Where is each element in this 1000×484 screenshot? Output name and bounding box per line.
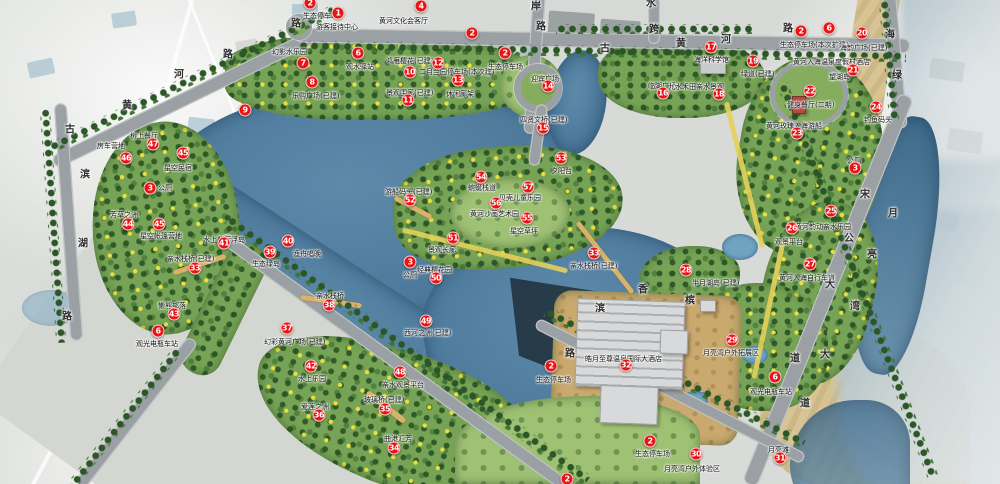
- road-label-char: 道: [790, 350, 800, 365]
- marker-label: 渔舟唱晚: [293, 251, 321, 258]
- map-marker-21[interactable]: 21: [847, 64, 860, 77]
- marker-label: 生态停车场: [635, 451, 670, 458]
- marker-label: 海洋科学馆: [694, 57, 729, 64]
- map-marker-9[interactable]: 9: [239, 104, 252, 117]
- marker-label: 鸿雁樱花(已建): [386, 58, 433, 65]
- map-marker-41[interactable]: 41: [218, 237, 231, 250]
- map-marker-27[interactable]: 27: [804, 258, 817, 271]
- marker-label: 亲水观景平台: [382, 382, 424, 389]
- map-marker-57[interactable]: 57: [522, 181, 535, 194]
- road-label-char: 月: [888, 205, 898, 220]
- map-marker-38[interactable]: 38: [323, 299, 336, 312]
- map-marker-6[interactable]: 6: [823, 22, 836, 35]
- road-label-char: 古: [65, 121, 75, 136]
- marker-label: 生态停车场: [488, 64, 523, 71]
- road-label-char: 大: [825, 276, 835, 291]
- road-label-char: 水: [646, 0, 656, 10]
- map-marker-42[interactable]: 42: [305, 360, 318, 373]
- map-marker-4[interactable]: 4: [415, 0, 428, 13]
- marker-label: 幻彩黄河广场(已建): [264, 339, 325, 346]
- map-marker-10[interactable]: 10: [404, 66, 417, 79]
- park-masterplan-map: 2生态停车场1游客接待中心4黄河文化会客厅26观水驿站7幻影水乐园12鸿雁樱花(…: [0, 0, 1000, 484]
- map-marker-31[interactable]: 31: [774, 452, 787, 465]
- map-marker-3[interactable]: 3: [144, 182, 157, 195]
- map-marker-54[interactable]: 54: [475, 171, 488, 184]
- road-label-char: 路: [536, 18, 546, 33]
- map-marker-20[interactable]: 20: [856, 27, 869, 40]
- marker-label: 贝壳儿童乐园: [499, 195, 541, 202]
- map-marker-6[interactable]: 6: [152, 325, 165, 338]
- map-overlay: 2生态停车场1游客接待中心4黄河文化会客厅26观水驿站7幻影水乐园12鸿雁樱花(…: [0, 0, 1000, 484]
- map-marker-51[interactable]: 51: [447, 232, 460, 245]
- map-marker-36[interactable]: 36: [313, 409, 326, 422]
- road-label-char: 绿: [892, 67, 902, 82]
- map-marker-19[interactable]: 19: [747, 55, 760, 68]
- marker-label: 房车营地: [97, 143, 125, 150]
- road-label-char: 滨: [595, 300, 605, 315]
- road-label-char: 滨: [80, 166, 90, 181]
- marker-label: 幻影水乐园: [272, 49, 307, 56]
- map-marker-7[interactable]: 7: [297, 57, 310, 70]
- road-label-char: 湖: [78, 235, 88, 250]
- map-marker-34[interactable]: 34: [388, 442, 401, 455]
- map-marker-2[interactable]: 2: [466, 27, 479, 40]
- map-marker-29[interactable]: 29: [726, 334, 739, 347]
- marker-label: 健身餐厅(二期): [787, 102, 834, 109]
- map-marker-16[interactable]: 16: [657, 87, 670, 100]
- marker-label: 蜿蜒栈道: [468, 185, 496, 192]
- marker-label: 夕阳台: [551, 168, 572, 175]
- marker-label: 乐购广场(已建): [292, 93, 339, 100]
- map-marker-13[interactable]: 13: [452, 74, 465, 87]
- marker-label: 黄河文化会客厅: [379, 18, 428, 25]
- map-marker-6[interactable]: 6: [352, 47, 365, 60]
- road-label-char: 河: [174, 66, 184, 81]
- road-label-char: 公: [844, 230, 854, 245]
- road-label-char: 槟: [685, 292, 695, 307]
- map-marker-55[interactable]: 55: [521, 212, 534, 225]
- map-marker-53[interactable]: 53: [555, 152, 568, 165]
- marker-label: 游客接待中心: [316, 24, 358, 31]
- map-marker-6[interactable]: 6: [769, 371, 782, 384]
- marker-label: 水上乐园: [298, 376, 326, 383]
- map-marker-35[interactable]: 35: [379, 403, 392, 416]
- map-marker-15[interactable]: 15: [537, 122, 550, 135]
- road-label-char: 跨: [649, 21, 659, 36]
- road-label-char: 湾: [850, 298, 860, 313]
- map-marker-23[interactable]: 23: [791, 127, 804, 140]
- map-marker-2[interactable]: 2: [499, 47, 512, 60]
- marker-label: 黄河韵动亲水乐园: [795, 224, 851, 231]
- marker-label: 公厕: [158, 185, 172, 192]
- road-label-char: 宋: [860, 186, 870, 201]
- marker-label: 公厕: [403, 272, 417, 279]
- road-label-char: 香: [638, 281, 648, 296]
- map-marker-14[interactable]: 14: [542, 80, 555, 93]
- road-label-char: 亮: [867, 246, 877, 261]
- map-marker-32[interactable]: 32: [620, 359, 633, 372]
- map-marker-11[interactable]: 11: [402, 94, 415, 107]
- road-label-char: 海: [885, 26, 895, 41]
- marker-label: 绿道(已建): [741, 71, 774, 78]
- map-marker-12[interactable]: 12: [432, 57, 445, 70]
- road-label-char: 路: [62, 308, 72, 323]
- road-label-char: 路: [223, 46, 233, 61]
- road-label-char: 黄: [676, 35, 686, 50]
- marker-label: 星空草坪: [510, 228, 538, 235]
- map-marker-2[interactable]: 2: [304, 0, 317, 10]
- map-marker-2[interactable]: 2: [644, 435, 657, 448]
- road-label-char: 道: [800, 395, 810, 410]
- marker-label: 半月湖岛(已建): [692, 280, 739, 287]
- road-label-char: 黄: [122, 97, 132, 112]
- map-marker-2[interactable]: 2: [545, 360, 558, 373]
- map-marker-2[interactable]: 2: [561, 473, 574, 484]
- marker-label: 观水驿站: [346, 64, 374, 71]
- road-label-char: 路: [291, 15, 301, 30]
- marker-label: 观光电瓶车站: [136, 341, 178, 348]
- map-marker-30[interactable]: 30: [690, 448, 703, 461]
- marker-label: 月亮湾户外体验区: [664, 466, 720, 473]
- road-label-char: 路: [783, 20, 793, 35]
- road-label-char: 路: [565, 345, 575, 360]
- marker-label: 生态停车场(本次扩建): [780, 42, 848, 49]
- marker-label: 海韵广场(已建): [840, 45, 887, 52]
- marker-label: 星空民宿: [164, 165, 192, 172]
- map-marker-26[interactable]: 26: [786, 222, 799, 235]
- map-marker-33[interactable]: 33: [588, 247, 601, 260]
- map-marker-52[interactable]: 52: [404, 194, 417, 207]
- road-label-char: 河: [721, 31, 731, 46]
- marker-label: 休闲廊架: [446, 91, 474, 98]
- marker-label: 望湖岛: [829, 74, 850, 81]
- marker-label: 生态绿岛: [252, 261, 280, 268]
- map-marker-43[interactable]: 43: [168, 308, 181, 321]
- map-marker-18[interactable]: 18: [713, 88, 726, 101]
- map-marker-48[interactable]: 48: [394, 366, 407, 379]
- map-marker-46[interactable]: 46: [120, 152, 133, 165]
- map-marker-28[interactable]: 28: [680, 264, 693, 277]
- map-marker-25[interactable]: 25: [825, 205, 838, 218]
- map-marker-22[interactable]: 22: [804, 85, 817, 98]
- road-label-char: 大: [820, 346, 830, 361]
- map-marker-37[interactable]: 37: [281, 322, 294, 335]
- road-label-char: 岸: [531, 0, 541, 13]
- map-marker-45[interactable]: 45: [153, 218, 166, 231]
- map-marker-39[interactable]: 39: [264, 246, 277, 259]
- map-marker-47[interactable]: 47: [147, 138, 160, 151]
- marker-label: 西河之洲(已建): [404, 330, 451, 337]
- marker-label: 黄河沙画艺术园: [470, 211, 519, 218]
- map-marker-24[interactable]: 24: [870, 101, 883, 114]
- map-marker-44[interactable]: 44: [122, 218, 135, 231]
- map-marker-2[interactable]: 2: [795, 25, 808, 38]
- marker-label: 观光电瓶车站: [750, 389, 792, 396]
- marker-label: 星空帐篷营地: [140, 233, 182, 240]
- map-marker-8[interactable]: 8: [306, 76, 319, 89]
- map-marker-56[interactable]: 56: [490, 197, 503, 210]
- marker-label: 生态停车场: [536, 377, 571, 384]
- map-marker-1[interactable]: 1: [332, 7, 345, 20]
- marker-label: 钓鱼码头: [864, 117, 892, 124]
- marker-label: 观景平台: [775, 239, 803, 246]
- road-label-char: 古: [600, 40, 610, 55]
- marker-label: 月亮湾户外拓展区: [703, 350, 759, 357]
- marker-label: 亲水栈桥(已建): [570, 263, 617, 270]
- map-marker-3[interactable]: 3: [849, 162, 862, 175]
- map-marker-17[interactable]: 17: [705, 41, 718, 54]
- map-marker-45[interactable]: 45: [177, 147, 190, 160]
- marker-label: 景观长廊: [428, 247, 456, 254]
- map-marker-3[interactable]: 3: [404, 256, 417, 269]
- map-marker-33[interactable]: 33: [189, 262, 202, 275]
- map-marker-50[interactable]: 50: [430, 272, 443, 285]
- map-marker-49[interactable]: 49: [420, 315, 433, 328]
- map-marker-40[interactable]: 40: [282, 235, 295, 248]
